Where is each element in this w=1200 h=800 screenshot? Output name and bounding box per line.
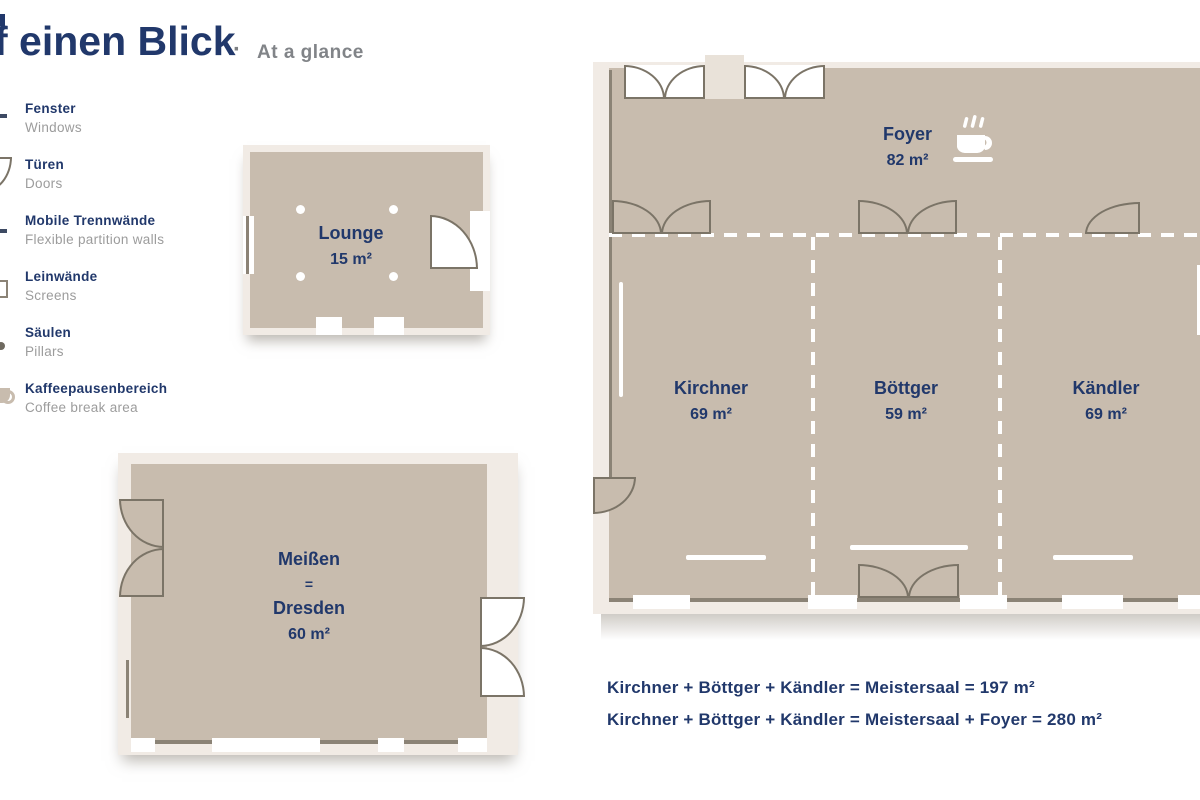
meissen-west-door-leaf xyxy=(119,548,164,597)
lounge-south-window xyxy=(316,317,342,335)
window-icon xyxy=(0,114,7,118)
room-area: 69 m² xyxy=(1036,402,1176,428)
lounge-pillar xyxy=(389,272,398,281)
page-title: f einen Blick xyxy=(0,18,236,65)
room-name: Kirchner xyxy=(641,375,781,402)
meissen-west-door-leaf xyxy=(119,499,164,548)
meissen-dresden-room-plan: Meißen = Dresden 60 m² xyxy=(118,453,518,755)
summary-line-2: Kirchner + Böttger + Kändler = Meistersa… xyxy=(607,704,1102,736)
south-wall-line xyxy=(857,598,960,602)
meistersaal-complex-plan: Foyer 82 m² Kirchner 69 m² Böttger 59 m²… xyxy=(593,55,1200,640)
legend-label-en: Windows xyxy=(25,120,245,135)
meissen-south-window xyxy=(131,738,155,752)
room-name: Meißen xyxy=(239,546,379,573)
south-wall-line xyxy=(609,598,633,602)
meissen-west-wall-screen xyxy=(126,660,129,718)
south-wall-line xyxy=(690,598,808,602)
lounge-west-window-glass xyxy=(246,216,249,274)
meissen-south-wall xyxy=(155,740,212,744)
boettger-kaendler-partition xyxy=(998,237,1002,598)
partition-icon xyxy=(0,229,7,233)
room-name: Böttger xyxy=(836,375,976,402)
north-wall-recess xyxy=(705,55,744,99)
lounge-label: Lounge 15 m² xyxy=(281,220,421,273)
south-window xyxy=(960,595,1007,609)
coffee-icon xyxy=(0,388,10,403)
room-area: 59 m² xyxy=(836,402,976,428)
legend-label-de: Mobile Trennwände xyxy=(25,213,245,228)
legend-item-screens: Leinwände Screens xyxy=(25,269,245,303)
door-icon xyxy=(0,157,12,193)
complex-west-wall xyxy=(593,62,609,614)
meissen-south-window xyxy=(458,738,487,752)
legend-label-de: Kaffeepausenbereich xyxy=(25,381,245,396)
title-separator: · xyxy=(233,36,241,64)
legend-label-de: Säulen xyxy=(25,325,245,340)
pillar-icon xyxy=(0,342,5,350)
meissen-label: Meißen = Dresden 60 m² xyxy=(239,546,379,648)
room-area: 15 m² xyxy=(281,247,421,273)
lounge-south-window xyxy=(374,317,404,335)
meissen-east-door-leaf xyxy=(480,647,525,697)
room-name: Kändler xyxy=(1036,375,1176,402)
legend-item-partitions: Mobile Trennwände Flexible partition wal… xyxy=(25,213,245,247)
legend-label-de: Leinwände xyxy=(25,269,245,284)
meissen-east-door-leaf xyxy=(480,597,525,647)
room-name: Lounge xyxy=(281,220,421,247)
capacity-summary: Kirchner + Böttger + Kändler = Meistersa… xyxy=(607,672,1102,736)
south-window xyxy=(1062,595,1123,609)
summary-line-1: Kirchner + Böttger + Kändler = Meistersa… xyxy=(607,672,1102,704)
boettger-screen xyxy=(850,545,968,550)
meissen-south-window xyxy=(212,738,320,752)
lounge-pillar xyxy=(296,272,305,281)
meissen-south-wall xyxy=(320,740,378,744)
south-wall-line xyxy=(1007,598,1062,602)
legend-item-doors: Türen Doors xyxy=(25,157,245,191)
coffee-cup-icon xyxy=(951,115,999,173)
legend-label-en: Pillars xyxy=(25,344,245,359)
kirchner-wall-screen xyxy=(619,282,623,397)
screen-icon xyxy=(0,280,8,298)
kaendler-screen xyxy=(1053,555,1133,560)
south-window xyxy=(1178,595,1200,609)
south-wall-line xyxy=(1123,598,1178,602)
legend-label-de: Türen xyxy=(25,157,245,172)
south-window xyxy=(808,595,857,609)
meissen-south-wall xyxy=(404,740,458,744)
legend-label-de: Fenster xyxy=(25,101,245,116)
legend-item-windows: Fenster Windows xyxy=(25,101,245,135)
kirchner-boettger-partition xyxy=(811,237,815,598)
room-area: 69 m² xyxy=(641,402,781,428)
legend-label-en: Flexible partition walls xyxy=(25,232,245,247)
plan-shadow xyxy=(601,614,1200,640)
boettger-label: Böttger 59 m² xyxy=(836,375,976,428)
legend-label-en: Doors xyxy=(25,176,245,191)
lounge-pillar xyxy=(296,205,305,214)
page-subtitle: At a glance xyxy=(257,42,364,64)
legend-label-en: Coffee break area xyxy=(25,400,245,415)
legend-item-coffee: Kaffeepausenbereich Coffee break area xyxy=(25,381,245,415)
lounge-pillar xyxy=(389,205,398,214)
complex-west-wall-line xyxy=(609,70,612,477)
kirchner-screen xyxy=(686,555,766,560)
room-equals: = xyxy=(239,573,379,595)
kirchner-label: Kirchner 69 m² xyxy=(641,375,781,428)
room-area: 60 m² xyxy=(239,622,379,648)
south-window xyxy=(633,595,690,609)
legend-label-en: Screens xyxy=(25,288,245,303)
kaendler-label: Kändler 69 m² xyxy=(1036,375,1176,428)
room-name: Dresden xyxy=(239,595,379,622)
legend-item-pillars: Säulen Pillars xyxy=(25,325,245,359)
lounge-room-plan: Lounge 15 m² xyxy=(243,145,490,335)
meissen-south-window xyxy=(378,738,404,752)
